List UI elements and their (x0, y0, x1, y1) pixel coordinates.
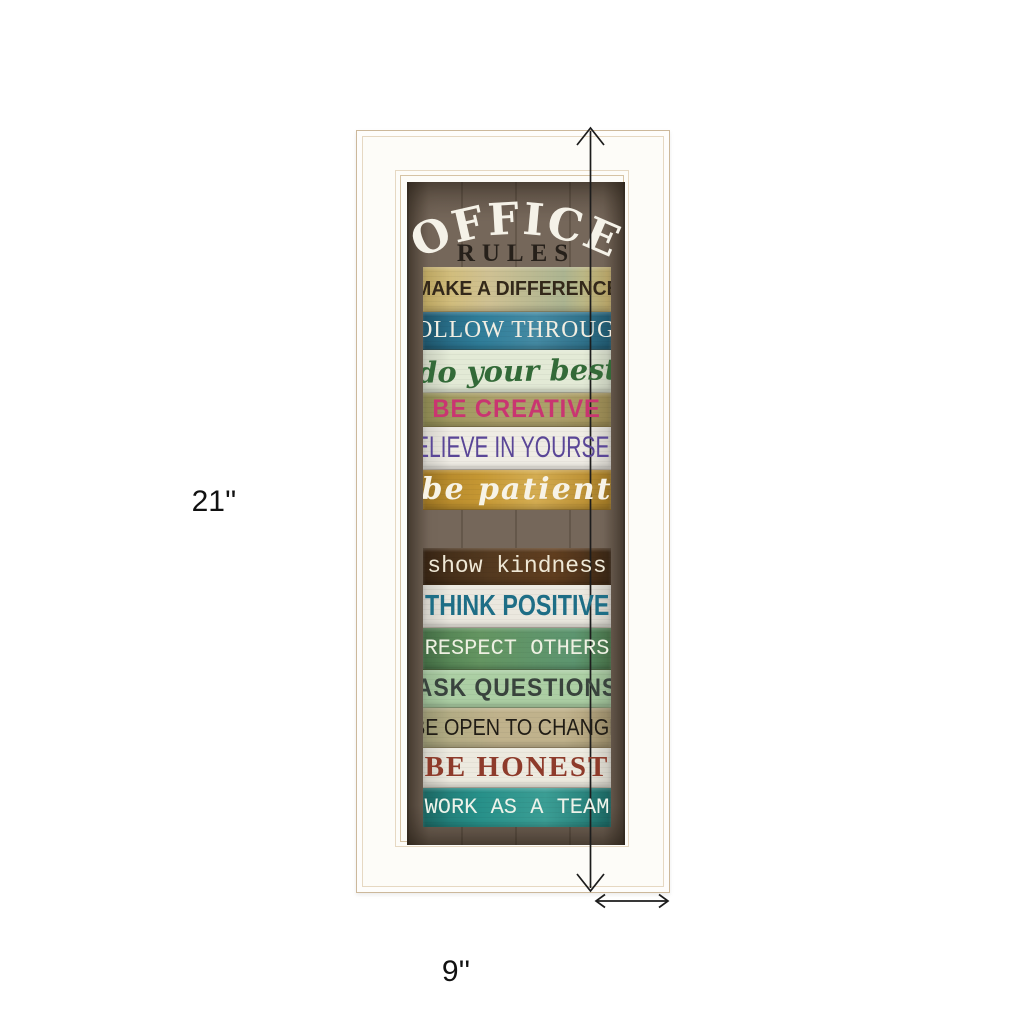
slat-work-as-a-team: WORK AS A TEAM (423, 788, 611, 827)
slat-be-open-to-change: BE OPEN TO CHANGE (423, 708, 611, 748)
arrow-right-icon (659, 895, 668, 908)
slat-follow-through: FOLLOW THROUGH (423, 312, 611, 350)
slat-make-a-difference: MAKE A DIFFERENCE (423, 267, 611, 312)
frame-molding: OFFICE RULES MAKE A DIFFERENCE FOLLOW TH… (362, 136, 664, 887)
width-label: 9'' (426, 955, 486, 989)
art-title: OFFICE RULES (407, 186, 625, 270)
slat-respect-others: RESPECT OTHERS (423, 628, 611, 670)
arrow-left-icon (596, 895, 605, 908)
wood-gap (423, 510, 611, 548)
slat-do-your-best: do your best (423, 350, 611, 393)
slat-believe-in-yourself: BELIEVE IN YOURSELF (423, 427, 611, 470)
slat-be-patient: be patient (423, 470, 611, 510)
slat-stack: MAKE A DIFFERENCE FOLLOW THROUGH do your… (423, 267, 611, 827)
slat-show-kindness: show kindness (423, 548, 611, 585)
product-dimension-image: OFFICE RULES MAKE A DIFFERENCE FOLLOW TH… (0, 0, 1024, 1024)
slat-think-positive: THINK POSITIVE (423, 585, 611, 628)
slat-be-creative: BE CREATIVE (423, 393, 611, 427)
slat-ask-questions: ASK QUESTIONS (423, 670, 611, 708)
height-label: 21'' (184, 485, 244, 519)
slat-be-honest: BE HONEST (423, 748, 611, 788)
picture-frame: OFFICE RULES MAKE A DIFFERENCE FOLLOW TH… (356, 130, 670, 893)
title-line2: RULES (407, 240, 625, 268)
art-print: OFFICE RULES MAKE A DIFFERENCE FOLLOW TH… (407, 182, 625, 845)
